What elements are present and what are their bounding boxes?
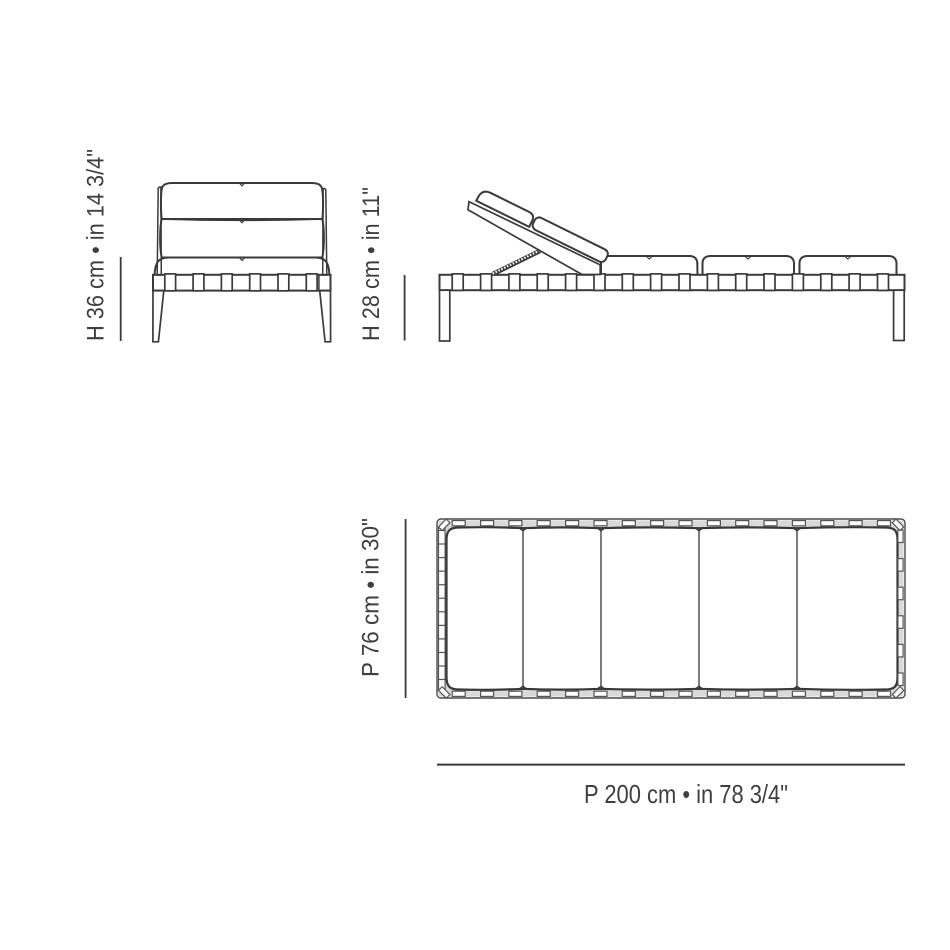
- svg-text:P 200 cm • in 78 3/4": P 200 cm • in 78 3/4": [584, 779, 788, 809]
- svg-text:P 76 cm • in 30": P 76 cm • in 30": [358, 518, 385, 677]
- svg-text:H 28 cm • in 11": H 28 cm • in 11": [358, 187, 385, 341]
- svg-text:H 36 cm • in 14 3/4": H 36 cm • in 14 3/4": [83, 149, 110, 341]
